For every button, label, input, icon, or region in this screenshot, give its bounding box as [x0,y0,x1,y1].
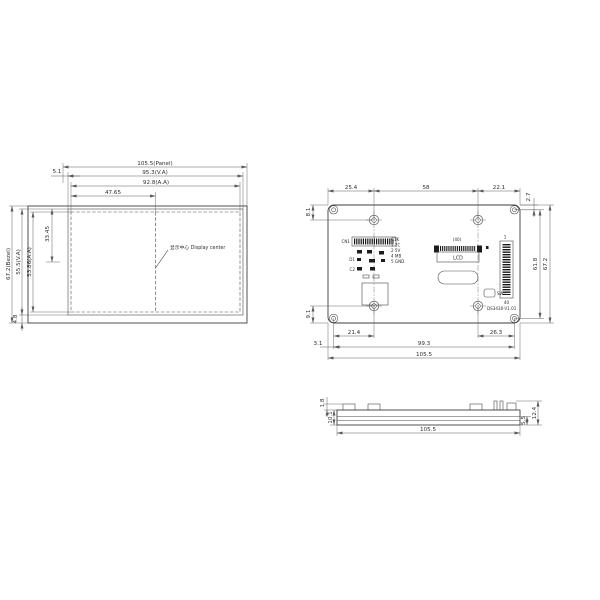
connector-bump [507,403,516,410]
dim-top-mid: 58 [422,185,430,191]
connector-latch [434,246,439,253]
smd-component [367,250,372,254]
dim-bump-height: 1.8 [320,398,326,407]
dim-bottom-holes-span: 99.3 [418,341,431,347]
pin-header-pin1: 1 [504,235,507,240]
dim-right-inner: 61.8 [533,257,539,270]
dim-bezel-height: 67.2(Bezel) [6,248,12,280]
smd-component [381,259,385,262]
smd-component [486,246,489,249]
front-view: 105.5(Panel) 95.3(V.A) 5.1 92.8(A.A) 47.… [6,161,247,331]
smd-pad [363,275,369,278]
layer-lines [337,417,520,421]
lcd-pin-count: (40) [453,237,462,242]
dim-top-left: 25.4 [345,185,358,191]
switch [484,289,495,297]
dim-half-width: 47.65 [105,190,121,196]
back-view: 25.4 58 22.1 2.7 8.1 9.1 61.8 67.2 21.4 … [306,185,554,360]
connector-pin [494,401,497,410]
dim-body-height: 10.1 [328,411,334,424]
dim-right-outer: 12.4 [532,406,538,419]
dim-bottom-hole-right: 26.3 [490,330,503,336]
side-profile-body [337,410,520,425]
display-center-callout: 显示中心 Display center [170,244,225,251]
lcd-connector-label: LCD [453,256,463,262]
dim-right-inner: 5.5 [521,416,527,425]
pin-legend: C1K 1 2C 2 5V 4 MB 5 GND [391,237,404,264]
switch-label: SW1 [497,291,507,296]
dim-bottom-total: 105.5 [416,352,432,358]
legend-line: 4 MB [391,254,401,259]
dim-aa-height: 53.86(A.A) [27,247,33,277]
dim-left-top: 8.1 [306,207,312,216]
hole-centerlines [366,211,486,315]
legend-line: 1 2C [391,243,401,248]
dim-right-outer: 67.2 [543,258,549,270]
smd-component [370,267,375,271]
dim-bottom-hole-left: 21.4 [348,330,361,336]
legend-line: 5 GND [391,259,404,264]
callout-leader [156,250,169,268]
inner-mounting-holes [369,215,483,311]
legend-line: 2 5V [391,248,401,253]
board-label: DS3430-V1.01 [487,306,517,311]
lcd-connector: (40) LCD [434,237,489,284]
mounting-boss [368,404,380,410]
lcd-module-technical-drawing: 105.5(Panel) 95.3(V.A) 5.1 92.8(A.A) 47.… [0,0,600,600]
component-cluster: CN1 D1 C2 C1K 1 2C 2 5V 4 MB 5 GND [341,237,404,305]
dim-aa-width: 92.8(A.A) [143,180,169,186]
bezel-outline [28,206,247,323]
dim-panel-width: 105.5(Panel) [137,161,172,167]
smd-component [357,258,361,261]
pin-header-pin40: 40 [504,300,510,305]
dim-center-vertical: 33.45 [45,226,51,242]
ref-cn1: CN1 [341,239,350,244]
smd-component [369,259,375,263]
dim-va-height: 55.5(V.A) [16,249,22,275]
dim-top-right: 22.1 [493,185,506,191]
ref-d1: D1 [349,257,355,262]
connector-latch [477,246,482,253]
dim-left-bottom: 9.1 [306,309,312,318]
ic-footprint [362,283,388,305]
dim-corner-top: 2.7 [526,192,532,201]
dim-total-width: 105.5 [420,427,436,433]
ref-c2: C2 [350,267,356,272]
smd-component [379,251,384,255]
smd-component [357,250,362,254]
dim-left-offset: 5.1 [53,169,62,175]
fpc-slot [438,271,478,284]
connector-pin [500,401,503,410]
dim-bottom-offset: 4.8 [13,314,19,323]
smd-component [357,267,362,271]
mounting-boss [470,404,482,410]
mounting-boss [343,404,355,410]
dim-corner-left: 3.1 [314,341,323,347]
side-view: 1.8 10.1 5.5 12.4 105.5 [320,397,542,436]
drawing-canvas: 105.5(Panel) 95.3(V.A) 5.1 92.8(A.A) 47.… [0,0,600,600]
dim-va-width: 95.3(V.A) [142,170,168,176]
legend-line: C1K [391,237,399,242]
